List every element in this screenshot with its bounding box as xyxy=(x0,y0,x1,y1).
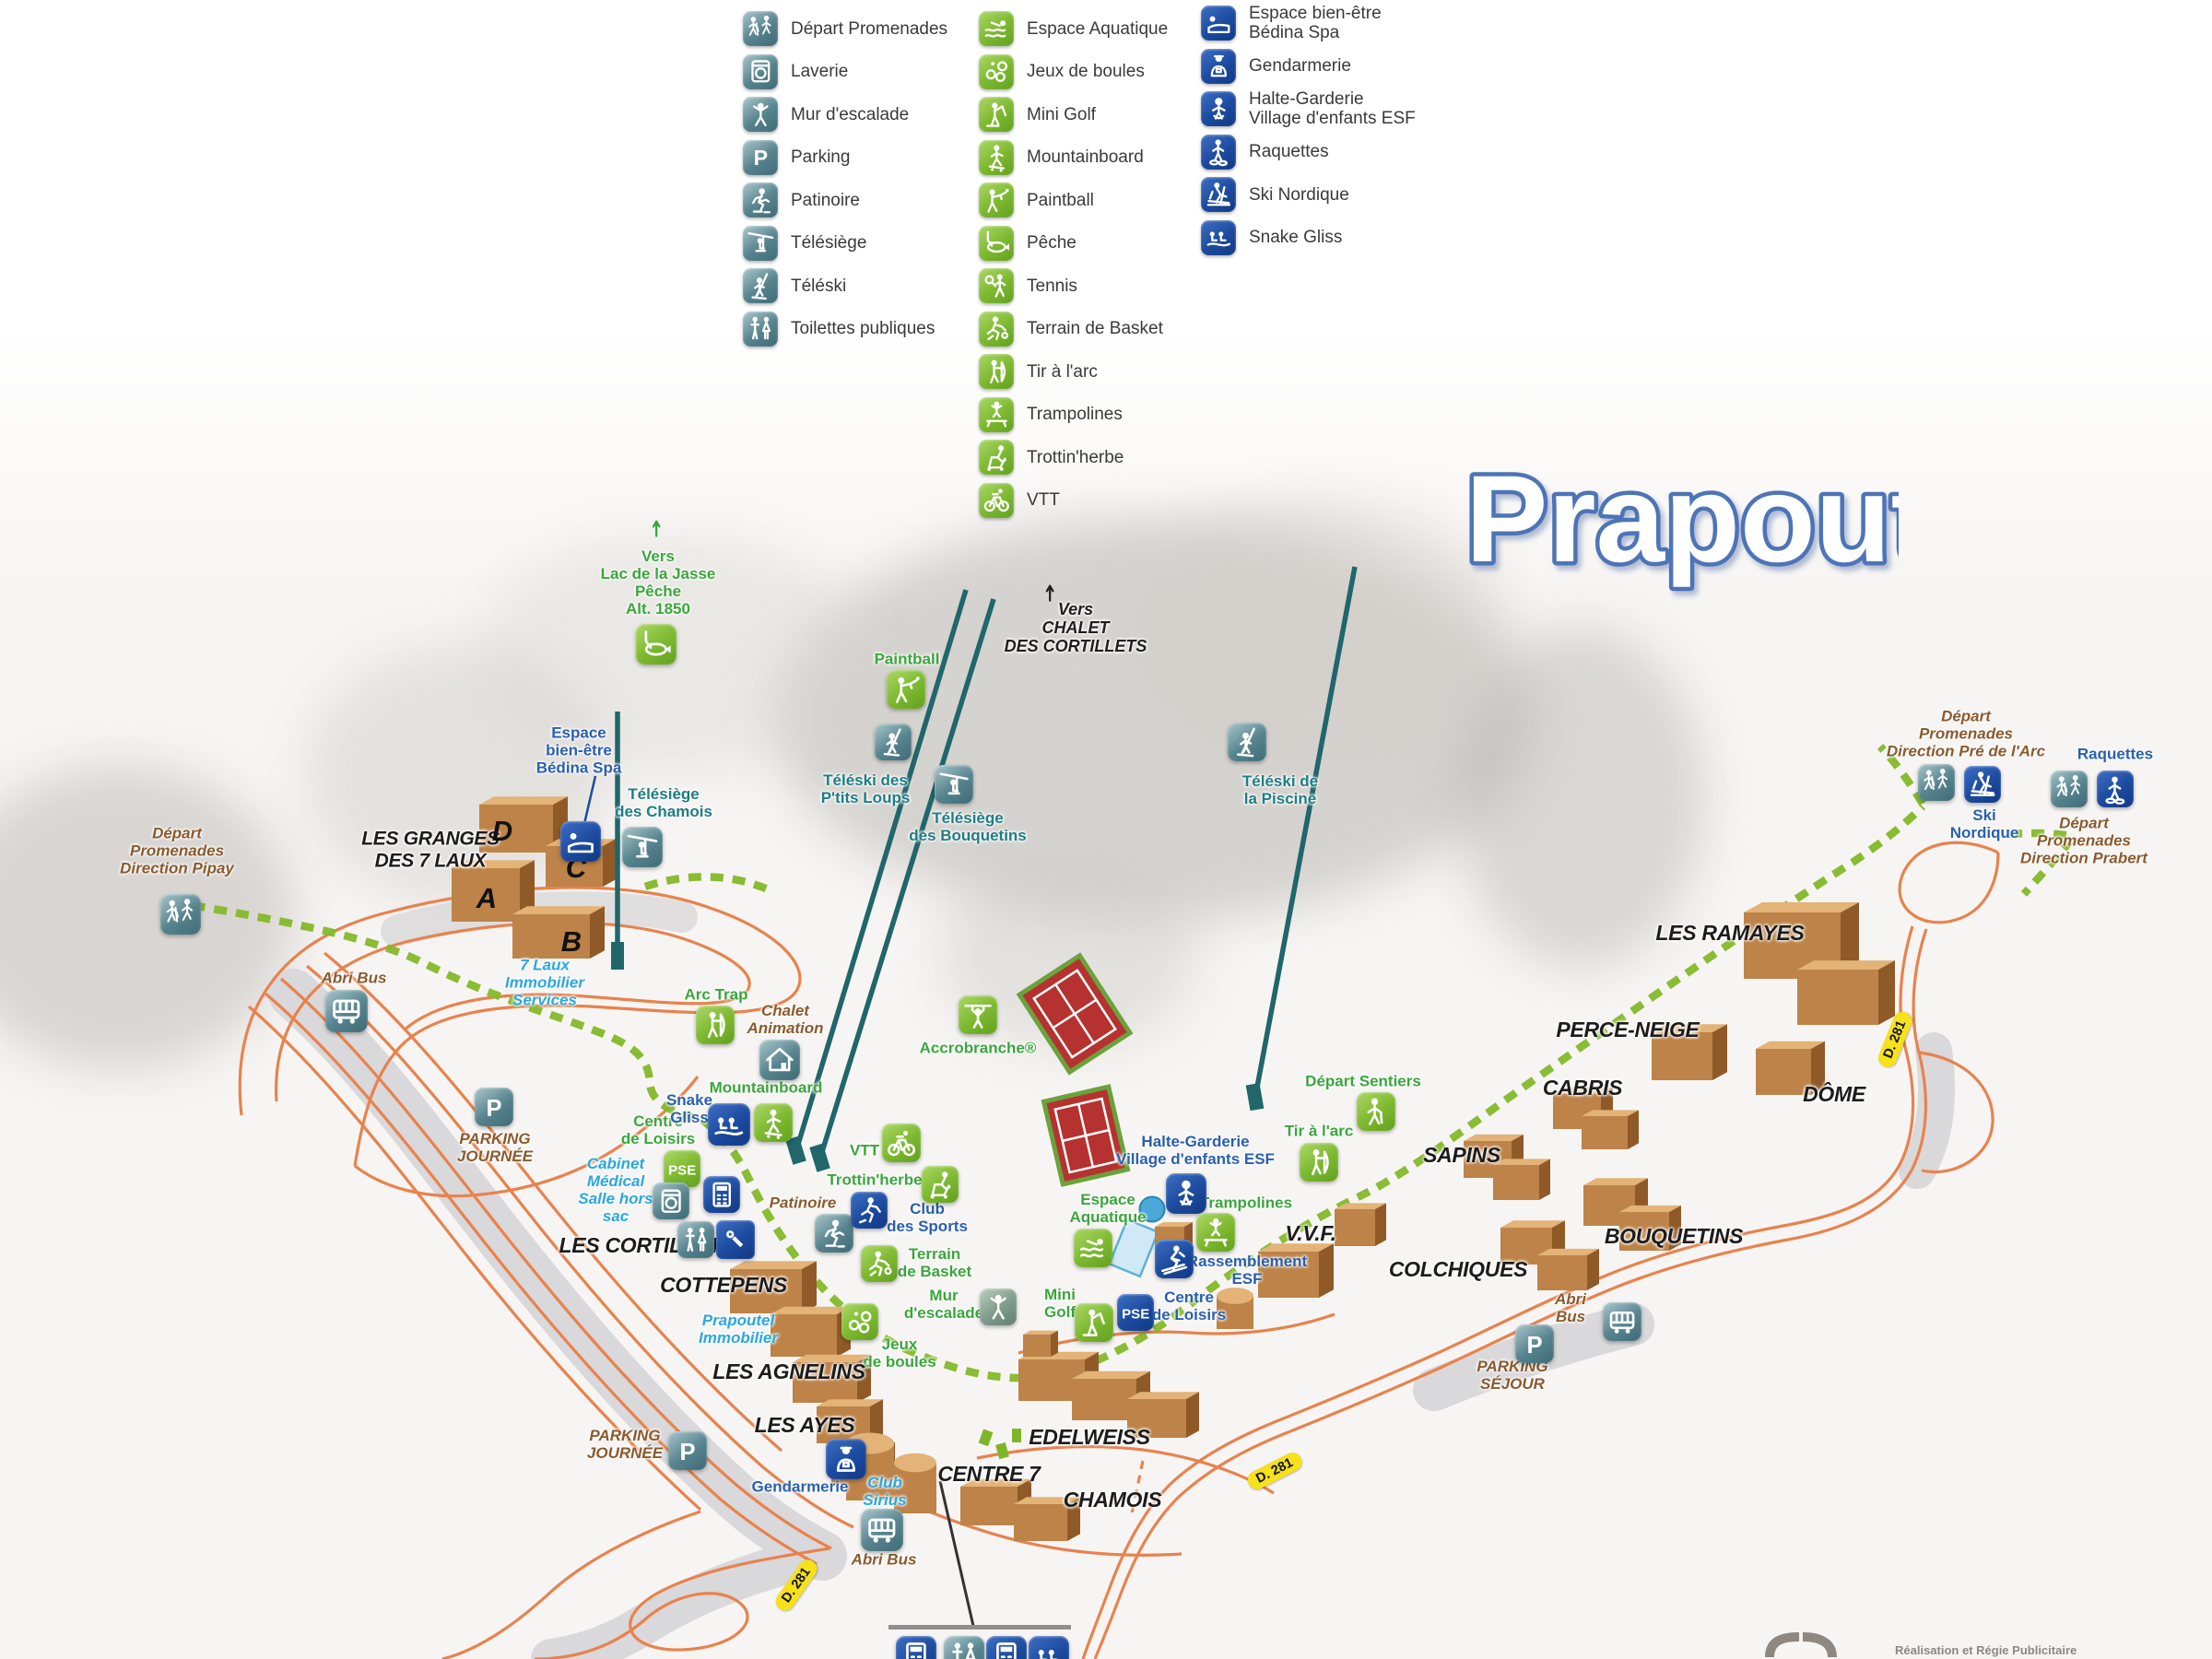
label-mini-golf: Mini Golf xyxy=(1044,1286,1076,1321)
boules-icon xyxy=(841,1303,878,1340)
legend-item-label: Tennis xyxy=(1027,276,1077,296)
skilift-icon xyxy=(875,724,912,760)
residence-dome: DÔME xyxy=(1803,1083,1865,1107)
skilift-icon xyxy=(743,268,778,303)
legend-item: Tir à l'arc xyxy=(979,350,1168,394)
snowshoe-icon xyxy=(1201,135,1236,170)
residence-sapins: SAPINS xyxy=(1423,1144,1500,1168)
residence-les-granges: LES GRANGES DES 7 LAUX xyxy=(361,828,500,871)
label-ski-nordique: Ski Nordique xyxy=(1950,806,2019,841)
legend-item-label: Raquettes xyxy=(1249,142,1329,161)
arrow-icon xyxy=(1038,581,1062,605)
accrobranche-icon xyxy=(959,995,997,1034)
legend-item: Départ Promenades xyxy=(743,7,947,51)
legend-item-label: Paintball xyxy=(1027,191,1094,210)
legend-item: Mini Golf xyxy=(979,93,1168,136)
legend-item-label: Mini Golf xyxy=(1027,105,1096,124)
trees xyxy=(979,1429,1021,1459)
label-lac-de-la-jasse: Vers Lac de la Jasse Pêche Alt. 1850 xyxy=(601,547,716,618)
parking-icon: P xyxy=(475,1088,513,1126)
golf-icon xyxy=(979,97,1014,132)
skater-icon xyxy=(743,182,778,218)
label-teleski-piscine: Téléski de la Piscine xyxy=(1242,772,1318,807)
halte-garderie-icon xyxy=(1166,1173,1206,1214)
tir-arc-icon xyxy=(1300,1143,1338,1182)
washer-icon xyxy=(653,1182,689,1219)
patinoire-icon xyxy=(815,1214,853,1253)
legend-item-label: Snake Gliss xyxy=(1249,228,1342,247)
residence-edelweiss: EDELWEISS xyxy=(1029,1426,1150,1450)
label-depart-pre-de-larc: Départ Promenades Direction Pré de l'Arc xyxy=(1887,707,2045,759)
legend-item: Tennis xyxy=(979,265,1168,308)
espace-aquatique-icon xyxy=(1074,1229,1112,1267)
xcski-icon xyxy=(1201,177,1236,212)
legend-item: Téléski xyxy=(743,265,947,308)
chairlift-icon xyxy=(743,226,778,261)
hikers-icon xyxy=(743,11,778,46)
parking-icon: P xyxy=(743,140,778,175)
legend-item: Laverie xyxy=(743,51,947,94)
legend-item-label: Terrain de Basket xyxy=(1027,319,1163,338)
label-espace-aquatique: Espace Aquatique xyxy=(1069,1191,1146,1226)
fish-icon xyxy=(636,624,677,665)
calc-icon xyxy=(986,1636,1027,1659)
residence-vvf: V.V.F. xyxy=(1285,1222,1335,1246)
prapoutel-resort-map: Prapoutel Départ PromenadesLaverieMur d'… xyxy=(0,0,2212,1659)
legend-item-label: Toilettes publiques xyxy=(791,319,935,338)
legend-item: Jeux de boules xyxy=(979,51,1168,94)
svg-text:P: P xyxy=(679,1440,695,1465)
residence-centre-7: CENTRE 7 xyxy=(937,1463,1040,1487)
credits-text: Réalisation et Régie Publicitaire xyxy=(1895,1643,2077,1657)
label-abri-bus-3: Abri Bus xyxy=(1555,1290,1586,1325)
legend-item: VTT xyxy=(979,479,1168,523)
mini-golf-icon xyxy=(1075,1303,1113,1342)
trottinherbe-icon xyxy=(922,1166,959,1203)
snake-icon xyxy=(708,1103,750,1146)
label-mountainboard: Mountainboard xyxy=(710,1078,823,1096)
legend-item: Halte-Garderie Village d'enfants ESF xyxy=(1201,88,1416,131)
fish-icon xyxy=(979,226,1014,261)
trampoline-icon xyxy=(1196,1213,1235,1252)
legend-column-3: Espace bien-être Bédina SpaGendarmerieHa… xyxy=(1201,2,1416,259)
label-raquettes: Raquettes xyxy=(2077,745,2153,762)
legend-item: Mountainboard xyxy=(979,136,1168,180)
snake-icon xyxy=(1201,220,1236,255)
club-sports-icon xyxy=(851,1192,888,1229)
building-letter-a: A xyxy=(477,882,497,915)
hikers-icon xyxy=(160,894,201,935)
board-icon xyxy=(979,140,1014,175)
parking-icon: P xyxy=(1515,1324,1554,1363)
swim-icon xyxy=(979,11,1014,46)
legend-item: Trampolines xyxy=(979,394,1168,437)
legend-item: Raquettes xyxy=(1201,131,1416,174)
depart-sentiers-icon xyxy=(1357,1092,1395,1131)
label-arc-trap: Arc Trap xyxy=(685,985,748,1003)
label-vtt: VTT xyxy=(850,1141,879,1159)
legend-item: Mur d'escalade xyxy=(743,93,947,136)
legend-item-label: Parking xyxy=(791,147,850,167)
legend-item: Espace bien-être Bédina Spa xyxy=(1201,2,1416,45)
label-patinoire: Patinoire xyxy=(770,1194,837,1211)
label-trottinherbe: Trottin'herbe xyxy=(827,1171,922,1188)
cash-machine-icon xyxy=(703,1176,740,1213)
scooter-icon xyxy=(979,440,1014,475)
label-prapoutel-immobilier: Prapoutel Immobilier xyxy=(699,1312,778,1347)
legend-item-label: Télésiège xyxy=(791,233,866,253)
parking-icon: P xyxy=(668,1431,707,1470)
spa-icon xyxy=(1201,6,1236,41)
legend-item: Télésiège xyxy=(743,222,947,265)
svg-text:P: P xyxy=(486,1096,501,1122)
label-depart-prabert: Départ Promenades Direction Prabert xyxy=(2020,814,2147,866)
legend-item-label: Mountainboard xyxy=(1027,147,1144,167)
title-text: Prapoutel xyxy=(1465,451,1899,588)
basket-icon xyxy=(861,1245,898,1282)
label-depart-sentiers: Départ Sentiers xyxy=(1305,1072,1421,1089)
legend-item: Toilettes publiques xyxy=(743,308,947,351)
child-icon xyxy=(1201,91,1236,126)
label-telesiege-chamois: Télésiège des Chamois xyxy=(615,785,712,820)
paintball-icon xyxy=(979,182,1014,218)
label-7laux-immobilier: 7 Laux Immobilier Services xyxy=(505,956,584,1008)
arrow-icon xyxy=(644,516,668,540)
legend-item: Patinoire xyxy=(743,179,947,222)
residence-les-ramayes: LES RAMAYES xyxy=(1655,922,1804,946)
label-terrain-basket: Terrain de Basket xyxy=(898,1245,971,1280)
hikers-icon xyxy=(2051,771,2088,807)
mur-escalade-icon xyxy=(980,1288,1017,1325)
label-cabinet-medical: Cabinet Médical Salle hors sac xyxy=(578,1155,653,1225)
building-letter-b: B xyxy=(561,925,582,959)
label-vers-chalet-cortillets: Vers CHALET DES CORTILLETS xyxy=(1005,600,1147,655)
label-abri-bus-2: Abri Bus xyxy=(852,1550,917,1568)
building-letter-d: D xyxy=(492,815,512,848)
legend-item: Snake Gliss xyxy=(1201,217,1416,260)
bus-icon xyxy=(861,1509,903,1551)
label-telesiege-bouquetins: Télésiège des Bouquetins xyxy=(909,809,1027,844)
label-parking-journee-1: PARKING JOURNÉE xyxy=(457,1130,533,1165)
label-paintball: Paintball xyxy=(875,650,940,667)
label-trampolines: Trampolines xyxy=(1200,1194,1292,1211)
residence-cabris: CABRIS xyxy=(1543,1077,1622,1100)
label-tir-a-larc: Tir à l'arc xyxy=(1285,1122,1354,1139)
chalet-animation-icon xyxy=(759,1040,800,1080)
label-club-des-sports: Club des Sports xyxy=(887,1200,968,1235)
residence-les-agnelins: LES AGNELINS xyxy=(712,1360,865,1384)
basket-icon xyxy=(979,312,1014,347)
wc-icon xyxy=(743,312,778,347)
label-mur-escalade: Mur d'escalade xyxy=(904,1287,983,1322)
pse-blue-icon: PSE xyxy=(1117,1294,1154,1331)
board-icon xyxy=(754,1103,793,1142)
boules-icon xyxy=(979,54,1014,89)
ski-nordique-icon xyxy=(1964,766,2001,803)
legend-item-label: Halte-Garderie Village d'enfants ESF xyxy=(1249,89,1416,129)
residence-colchiques: COLCHIQUES xyxy=(1389,1258,1527,1282)
bus-icon xyxy=(325,990,368,1032)
legend-item-label: Laverie xyxy=(791,62,848,81)
bus-icon xyxy=(1603,1302,1641,1341)
legend-column-1: Départ PromenadesLaverieMur d'escaladePP… xyxy=(743,7,947,350)
legend-item-label: Jeux de boules xyxy=(1027,62,1145,81)
skilift-icon xyxy=(1228,723,1266,761)
wc-icon xyxy=(677,1221,714,1258)
publisher-logo xyxy=(1759,1620,1843,1659)
spa-icon xyxy=(560,821,601,862)
label-club-sirius: Club Sirius xyxy=(863,1474,906,1509)
legend-item-label: Téléski xyxy=(791,276,846,296)
legend-item-label: Tir à l'arc xyxy=(1027,362,1098,382)
legend-item-label: VTT xyxy=(1027,490,1060,510)
legend-item: Terrain de Basket xyxy=(979,308,1168,351)
label-abri-bus-1: Abri Bus xyxy=(322,969,387,986)
raquettes-icon xyxy=(2097,771,2134,807)
legend-item: Paintball xyxy=(979,179,1168,222)
label-centre-de-loisirs-2: Centre de Loisirs xyxy=(1152,1288,1226,1324)
chairlift-icon xyxy=(622,827,663,867)
legend-item: Ski Nordique xyxy=(1201,173,1416,217)
label-depart-pipay: Départ Promenades Direction Pipay xyxy=(120,824,234,877)
legend-item-label: Ski Nordique xyxy=(1249,185,1349,205)
vtt-icon xyxy=(882,1124,921,1162)
legend-item-label: Espace bien-être Bédina Spa xyxy=(1249,4,1382,43)
label-teleski-ptits-loups: Téléski des P'tits Loups xyxy=(821,771,911,806)
svg-text:PSE: PSE xyxy=(1122,1306,1149,1322)
label-snake-gliss: Snake Gliss xyxy=(666,1091,712,1126)
washer-icon xyxy=(743,54,778,89)
chairlift-icon xyxy=(935,765,973,804)
legend-item: Gendarmerie xyxy=(1201,45,1416,88)
label-gendarmerie: Gendarmerie xyxy=(752,1477,849,1495)
legend-item: Trottin'herbe xyxy=(979,436,1168,479)
legend-item-label: Pêche xyxy=(1027,233,1077,253)
label-espace-bien-etre: Espace bien-être Bédina Spa xyxy=(536,724,622,776)
label-halte-garderie: Halte-Garderie Village d'enfants ESF xyxy=(1116,1133,1275,1168)
svg-text:P: P xyxy=(1526,1333,1542,1359)
legend-item-label: Trottin'herbe xyxy=(1027,448,1124,467)
legend-item-label: Patinoire xyxy=(791,191,860,210)
climber-icon xyxy=(743,97,778,132)
trampoline-icon xyxy=(979,397,1014,432)
bike-icon xyxy=(979,483,1014,518)
residence-perce-neige: PERCE-NEIGE xyxy=(1556,1018,1699,1042)
label-parking-journee-2: PARKING JOURNÉE xyxy=(587,1427,663,1462)
legend-item-label: Départ Promenades xyxy=(791,19,947,39)
tennis-icon xyxy=(979,268,1014,303)
label-chalet-animation: Chalet Animation xyxy=(747,1002,823,1037)
legend-item: Pêche xyxy=(979,222,1168,265)
legend-item-label: Trampolines xyxy=(1027,405,1123,424)
svg-text:P: P xyxy=(753,147,767,171)
paintball-icon xyxy=(887,670,925,709)
legend-column-2: Espace AquatiqueJeux de boulesMini GolfM… xyxy=(979,7,1168,522)
wc-icon xyxy=(944,1636,984,1659)
archer-icon xyxy=(979,354,1014,389)
residence-les-ayes: LES AYES xyxy=(755,1414,855,1438)
hikers-icon xyxy=(1918,764,1955,801)
legend-item: PParking xyxy=(743,136,947,180)
resort-title: Prapoutel xyxy=(1456,449,1899,610)
residence-chamois: CHAMOIS xyxy=(1064,1488,1162,1512)
arc-trap-icon xyxy=(696,1006,735,1044)
legend-item-label: Mur d'escalade xyxy=(791,105,909,124)
pse-green-icon: PSE xyxy=(664,1150,700,1187)
calc-icon xyxy=(896,1636,936,1659)
esf-icon xyxy=(1155,1240,1194,1278)
residence-cottepens: COTTEPENS xyxy=(660,1274,787,1298)
snake-icon xyxy=(1029,1636,1069,1659)
legend-item: Espace Aquatique xyxy=(979,7,1168,51)
legend-item-label: Espace Aquatique xyxy=(1027,19,1168,39)
label-rassemblement-esf: Rassemblement ESF xyxy=(1187,1253,1307,1288)
tourist-info-icon xyxy=(716,1220,755,1259)
gendarme-icon xyxy=(826,1439,866,1479)
svg-text:PSE: PSE xyxy=(668,1162,696,1178)
legend-item-label: Gendarmerie xyxy=(1249,56,1351,76)
label-jeux-de-boules: Jeux de boules xyxy=(863,1335,935,1371)
residence-bouquetins: BOUQUETINS xyxy=(1605,1225,1743,1249)
label-accrobranche: Accrobranche® xyxy=(920,1039,1037,1056)
tennis-courts xyxy=(1019,956,1130,1184)
gendarme-icon xyxy=(1201,49,1236,84)
